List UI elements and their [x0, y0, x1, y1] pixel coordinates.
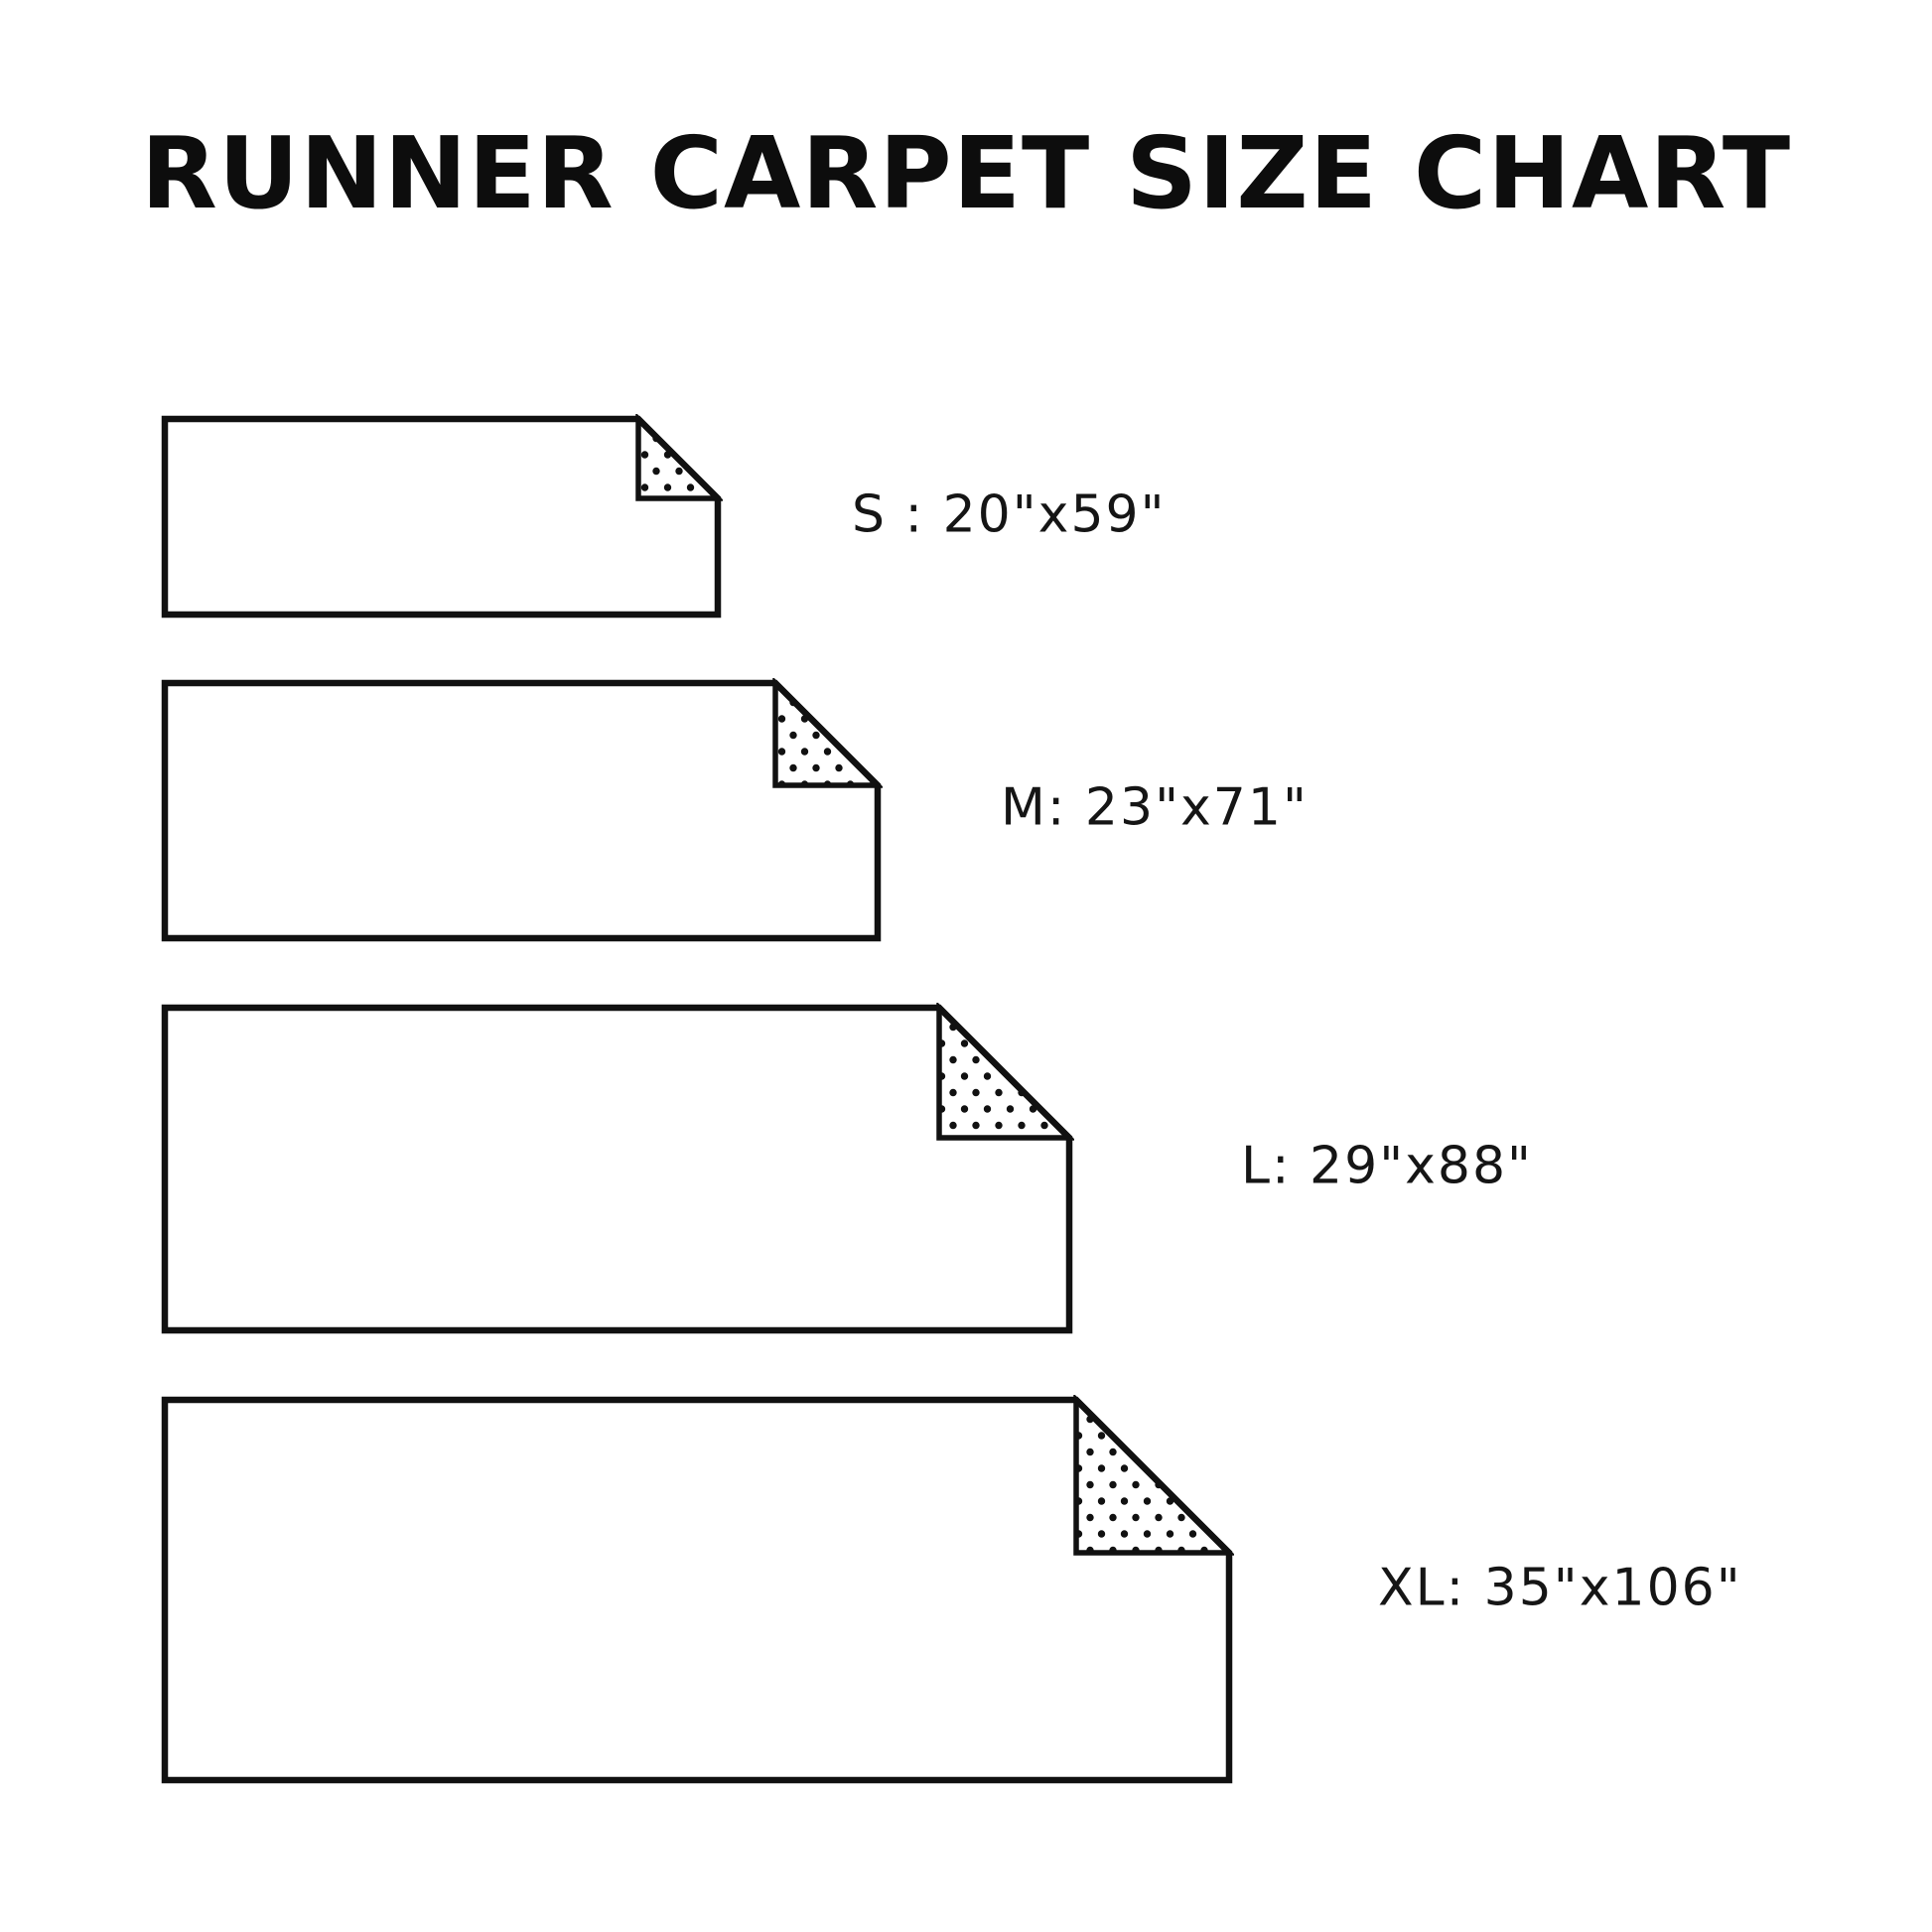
carpet-outline-svg	[160, 1395, 1234, 1785]
page-title: RUNNER CARPET SIZE CHART	[0, 119, 1932, 228]
folded-corner-icon	[775, 683, 878, 785]
folded-corner-icon	[638, 419, 718, 498]
size-label-m: M: 23"x71"	[1001, 778, 1309, 838]
carpet-shape-xl	[160, 1395, 1234, 1785]
runner-carpet-size-chart: RUNNER CARPET SIZE CHART S : 20"x59" M: …	[0, 0, 1932, 1932]
size-label-s: S : 20"x59"	[852, 485, 1167, 545]
carpet-outline-svg	[160, 1003, 1074, 1335]
carpet-rectangle	[165, 419, 718, 615]
size-label-xl: XL: 35"x106"	[1378, 1559, 1742, 1618]
carpet-outline-svg	[160, 678, 883, 943]
carpet-shape-l	[160, 1003, 1074, 1335]
folded-corner-icon	[939, 1008, 1069, 1138]
carpet-rectangle	[165, 1400, 1229, 1780]
carpet-outline-svg	[160, 414, 723, 620]
carpet-rectangle	[165, 683, 878, 938]
carpet-shape-m	[160, 678, 883, 943]
size-label-l: L: 29"x88"	[1241, 1137, 1533, 1196]
folded-corner-icon	[1076, 1400, 1229, 1553]
carpet-rectangle	[165, 1008, 1069, 1330]
carpet-shape-s	[160, 414, 723, 620]
